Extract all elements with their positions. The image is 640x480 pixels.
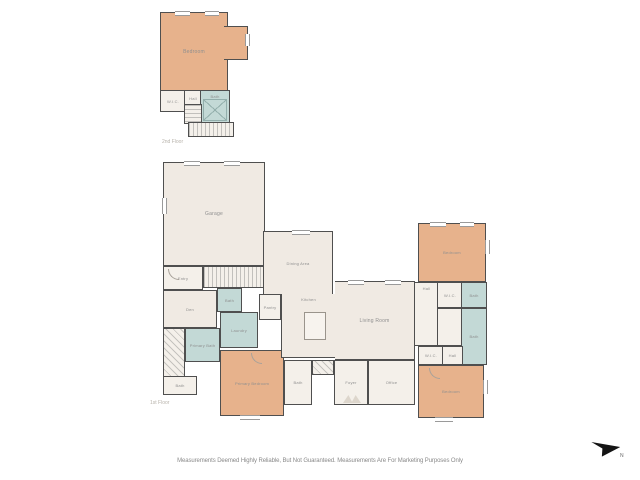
room-label: Bath [293,380,302,385]
door-arc [168,269,179,280]
room-bedroom-se: Bedroom [418,365,484,418]
room-entry: Entry [163,266,203,290]
room-label: W.I.C. [167,99,179,104]
window [485,240,490,254]
window [184,161,200,166]
window [240,415,260,420]
room-hall: Hall [415,282,439,346]
room-label: Hall [189,96,197,101]
room-linen-closet [437,308,463,346]
floor-caption-upper: 2nd Floor [162,139,183,145]
closet-front [312,360,334,375]
room-label: Laundry [231,328,247,333]
room-primary-wic [163,328,185,378]
room-label: Hall [423,286,431,291]
room-primary-bedroom: Primary Bedroom [220,350,284,416]
room-label: Bedroom [443,250,461,255]
window [245,34,250,46]
room-label: Den [186,307,194,312]
room-label: Primary Bedroom [235,381,269,386]
window [430,222,446,227]
room-label: Primary Bath [190,343,216,348]
staircase-main [203,266,265,288]
room-label: Dining Area [287,261,310,266]
north-arrow-icon [591,434,622,458]
staircase-upper-landing [188,122,234,137]
room-label: Entry [178,276,188,281]
room-dining-area: Dining Area [263,231,333,294]
window [435,417,453,422]
room-label: Bedroom [442,389,460,394]
room-foyer: Foyer [334,360,368,405]
room-pantry: Pantry [259,294,281,320]
window [175,11,190,16]
staircase-upper-run [184,104,202,124]
window [460,222,474,227]
room-bath-upper: Bath [200,90,230,124]
front-door-marks [343,395,361,403]
floor-caption-main: 1st Floor [150,400,169,406]
shower [203,99,227,121]
room-label: Foyer [345,380,356,385]
window [224,161,240,166]
door-arc [251,353,262,364]
room-label: Hall [449,353,457,358]
room-laundry: Laundry [220,312,258,348]
room-wic-se: W.I.C. [418,346,444,365]
window [162,198,167,214]
room-label: Office [386,380,398,385]
room-garage: Garage [163,162,265,266]
disclaimer-text: Measurements Deemed Highly Reliable, But… [0,458,640,464]
door-arc [429,368,440,379]
compass-label: N [620,453,624,459]
room-label: W.I.C. [425,353,437,358]
room-label: Bath [225,298,234,303]
room-label: Bath [175,383,184,388]
room-bath-front: Bath [284,360,312,405]
room-label: Pantry [264,305,277,310]
room-label: Living Room [360,318,390,324]
room-primary-bath: Primary Bath [185,328,220,362]
window [483,380,488,394]
room-powder: Bath [163,376,197,395]
room-bath-se: Bath [461,308,487,365]
room-label: W.I.C. [444,293,456,298]
room-label: Kitchen [301,297,316,302]
room-bedroom-upper: Bedroom [160,12,228,92]
room-label: Garage [205,211,223,217]
room-bath-hall: Bath [217,288,242,312]
room-wic-upper: W.I.C. [160,90,186,112]
room-label: Bedroom [183,49,205,55]
room-den: Den [163,290,217,328]
room-bath-ne: Bath [461,282,487,308]
room-bedroom-ne: Bedroom [418,223,486,282]
room-label: Bath [469,334,478,339]
room-office: Office [368,360,415,405]
room-label: Bath [469,293,478,298]
window [292,230,310,235]
room-wic-ne: W.I.C. [437,282,463,308]
kitchen-island [304,312,326,340]
compass-north-icon: N [592,434,628,464]
window [348,280,364,285]
room-hall-se: Hall [442,346,463,365]
window [205,11,219,16]
room-kitchen: Kitchen [281,294,335,358]
window [385,280,401,285]
room-living-room: Living Room [335,281,415,360]
